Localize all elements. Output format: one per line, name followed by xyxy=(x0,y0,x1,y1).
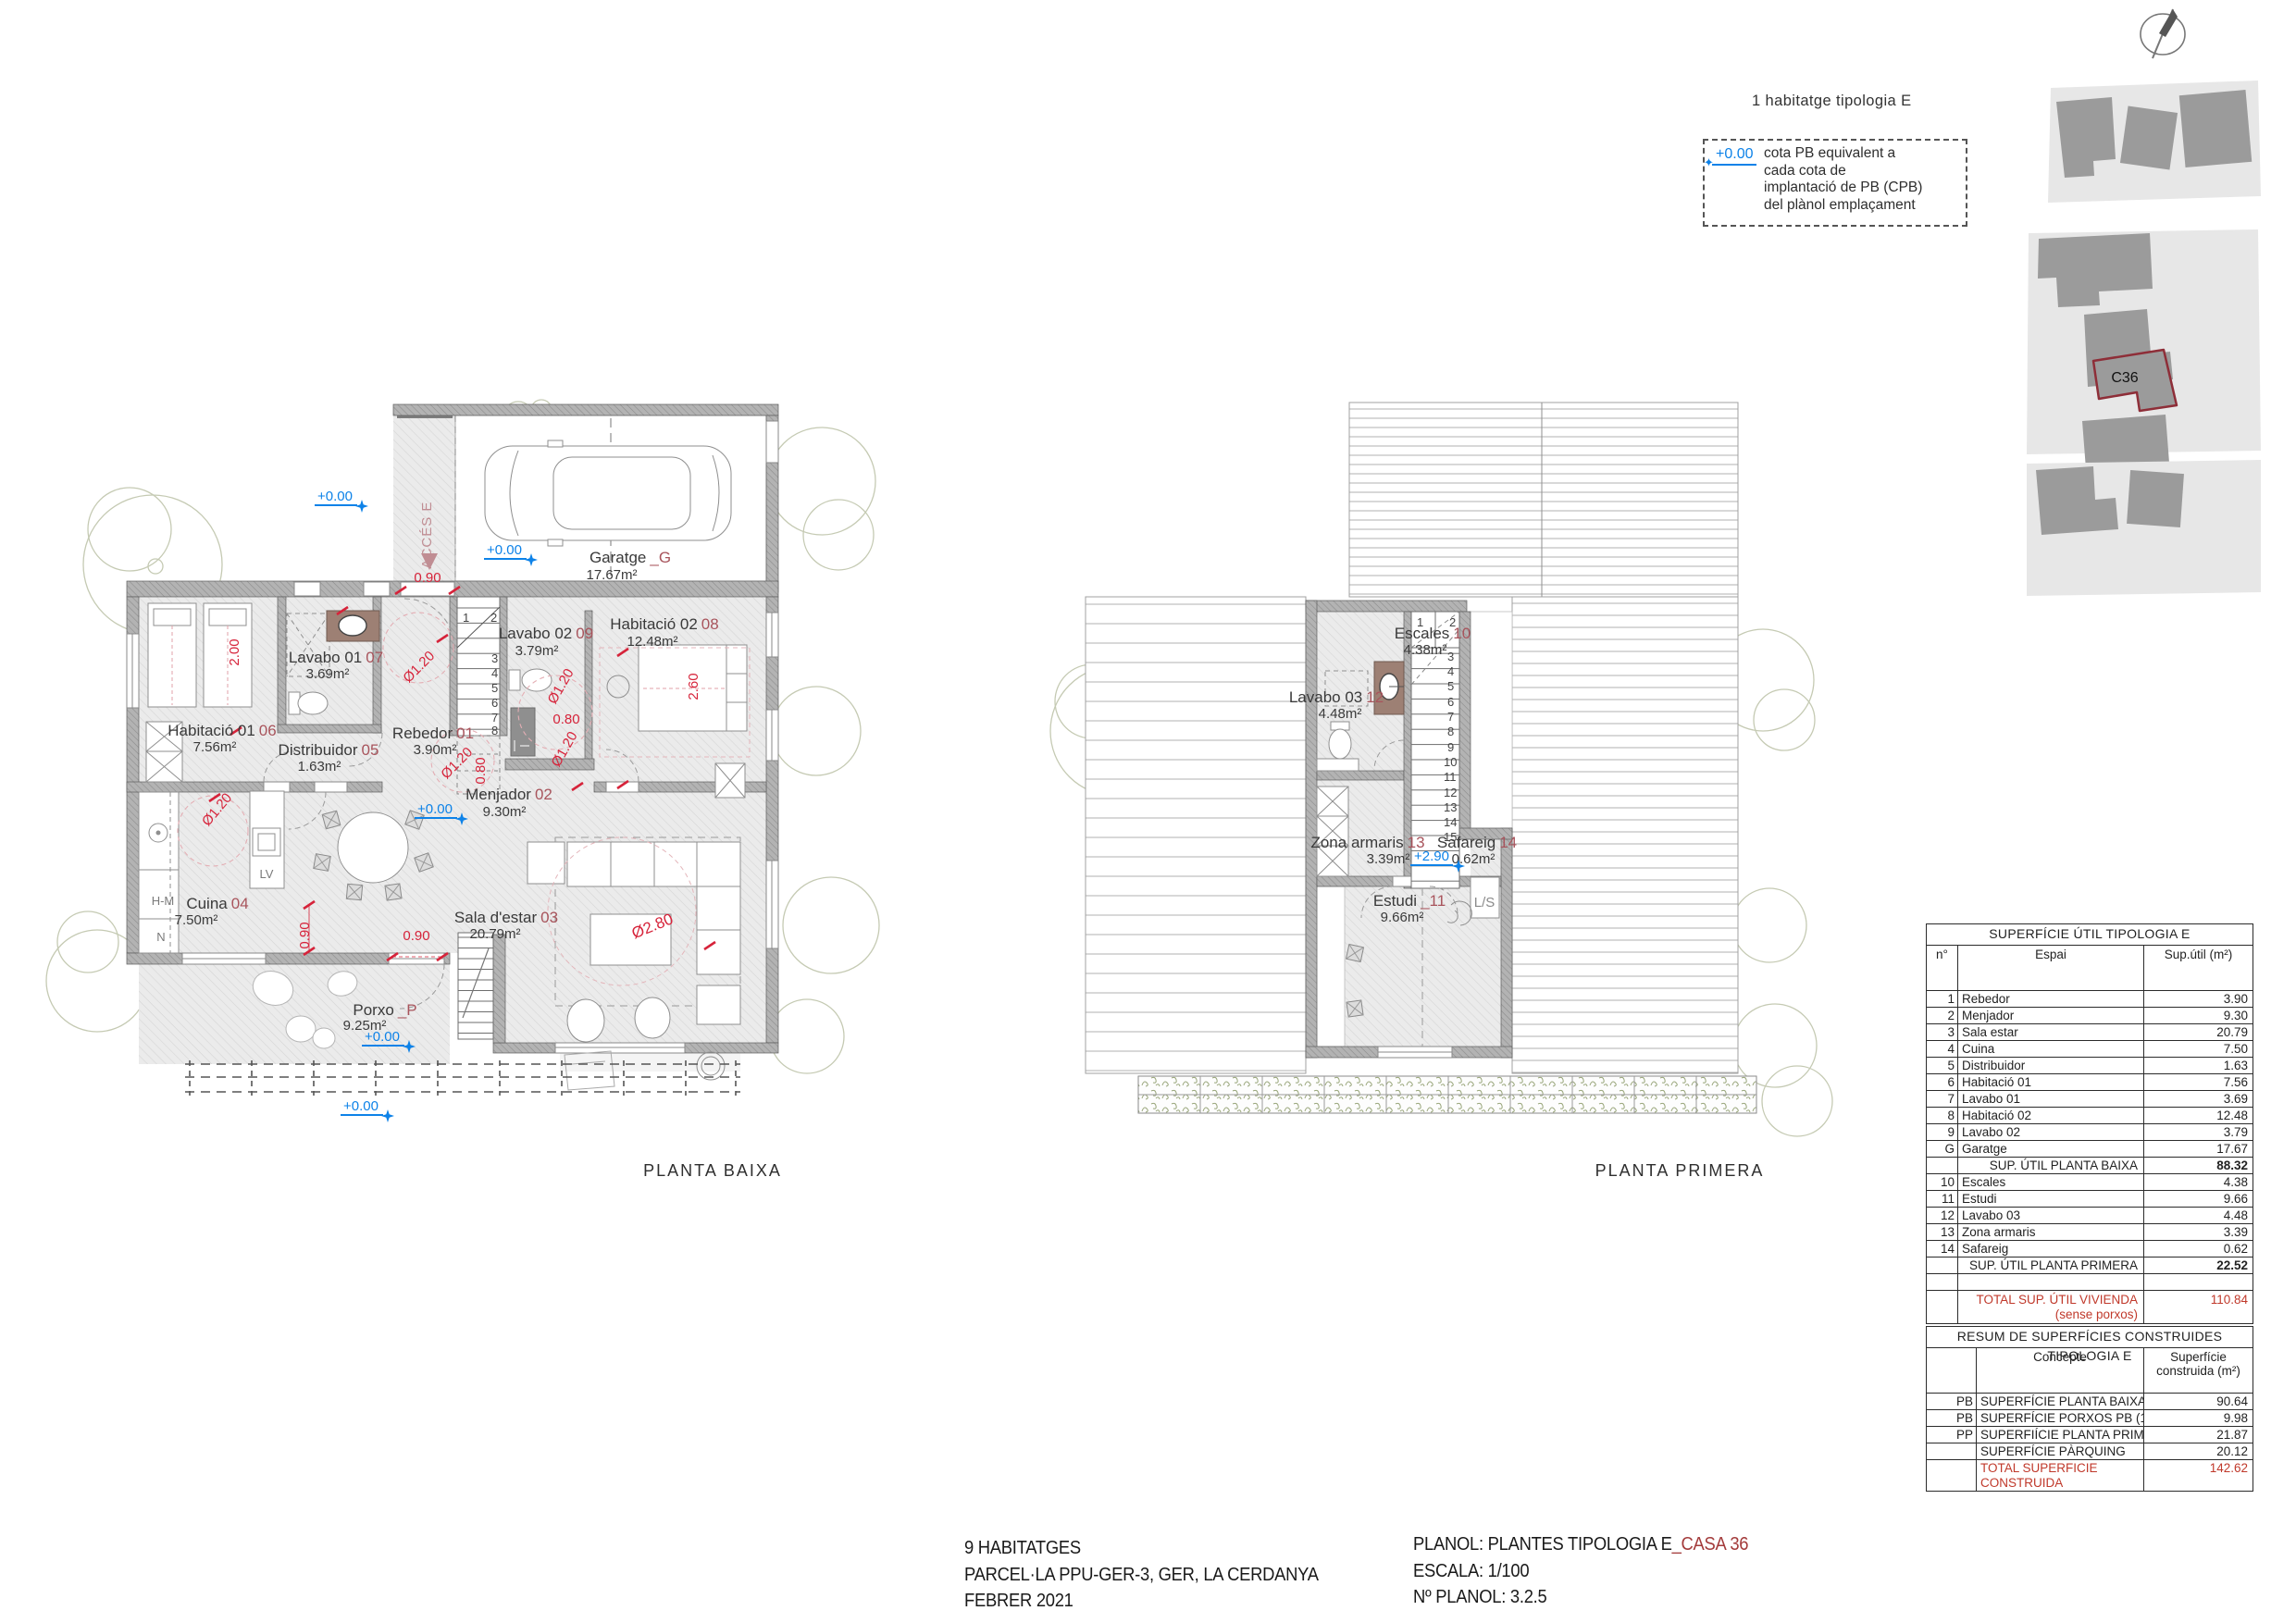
svg-text:Habitació 0106: Habitació 0106 xyxy=(168,722,276,739)
svg-text:0.90: 0.90 xyxy=(403,928,429,944)
svg-text:9: 9 xyxy=(1447,740,1454,754)
svg-text:0.90: 0.90 xyxy=(414,570,441,586)
svg-text:3.39m²: 3.39m² xyxy=(1367,851,1410,867)
table-row: PBSUPERFÍCIE PLANTA BAIXA90.64 xyxy=(1927,1393,2253,1409)
svg-text:+0.00: +0.00 xyxy=(417,801,453,817)
table-row: GGaratge17.67 xyxy=(1927,1140,2253,1157)
table-row: 11Estudi9.66 xyxy=(1927,1190,2253,1207)
table-title: RESUM DE SUPERFÍCIES CONSTRUIDES TIPOLOG… xyxy=(1927,1327,2253,1347)
svg-text:+0.00: +0.00 xyxy=(343,1098,379,1114)
svg-text:Lavabo 0209: Lavabo 0209 xyxy=(499,625,593,642)
table-title: SUPERFÍCIE ÚTIL TIPOLOGIA E xyxy=(1927,924,2253,945)
svg-text:Estudi_11: Estudi_11 xyxy=(1373,892,1446,910)
sheet-house-code: _CASA 36 xyxy=(1672,1534,1749,1555)
svg-text:3: 3 xyxy=(1447,650,1454,663)
table-superficie-util: SUPERFÍCIE ÚTIL TIPOLOGIA E n° Espai Sup… xyxy=(1926,923,2253,1324)
svg-text:10: 10 xyxy=(1444,755,1457,769)
total-row: TOTAL SUP. ÚTIL VIVIENDA(sense porxos)11… xyxy=(1927,1290,2253,1323)
sheet-number: Nº PLANOL: 3.2.5 xyxy=(1413,1584,1748,1611)
table-row: 9Lavabo 023.79 xyxy=(1927,1123,2253,1140)
planta-primera: 1 2 3 4 5 6 7 8 9 10 11 12 13 14 15 Esca… xyxy=(1050,403,1832,1180)
svg-text:1: 1 xyxy=(463,611,469,625)
svg-text:5: 5 xyxy=(491,681,498,695)
table-row: 10Escales4.38 xyxy=(1927,1173,2253,1190)
col-espai: Espai xyxy=(1958,946,2144,990)
svg-text:9.66m²: 9.66m² xyxy=(1381,910,1424,925)
subtotal-pb-row: SUP. ÚTIL PLANTA BAIXA88.32 xyxy=(1927,1157,2253,1173)
svg-text:Menjador02: Menjador02 xyxy=(465,786,552,803)
svg-text:3.90m²: 3.90m² xyxy=(414,742,457,758)
svg-text:3.69m²: 3.69m² xyxy=(306,666,350,682)
legend-line: del plànol emplaçament xyxy=(1764,197,1922,215)
north-arrow-icon xyxy=(2141,9,2185,58)
svg-text:Sala d'estar03: Sala d'estar03 xyxy=(454,909,558,926)
svg-text:6: 6 xyxy=(491,696,498,710)
svg-text:Porxo_P: Porxo_P xyxy=(353,1001,416,1019)
svg-text:12.48m²: 12.48m² xyxy=(627,634,677,650)
svg-text:13: 13 xyxy=(1444,800,1457,814)
planta-baixa: ACCÉS E 0.90 2.00 Ø1.20 Ø1.20 0.80 Ø1.20… xyxy=(46,400,879,1180)
table-row: PPSUPERFIÍCIE PLANTA PRIMERA21.87 xyxy=(1927,1426,2253,1443)
svg-text:L/S: L/S xyxy=(1474,895,1496,911)
svg-text:2.60: 2.60 xyxy=(686,673,701,700)
titleblock-sheet: PLANOL: PLANTES TIPOLOGIA E_CASA 36 ESCA… xyxy=(1413,1531,1748,1611)
project-location: PARCEL·LA PPU-GER-3, GER, LA CERDANYA xyxy=(964,1562,1319,1589)
table-row: 13Zona armaris3.39 xyxy=(1927,1223,2253,1240)
col-concepte: Concepte xyxy=(1977,1348,2144,1393)
caption-planta-primera: PLANTA PRIMERA xyxy=(1595,1161,1765,1180)
col-no: n° xyxy=(1927,946,1958,990)
legend-cota-value: +0.00 xyxy=(1712,146,1756,166)
project-date: FEBRER 2021 xyxy=(964,1588,1319,1615)
svg-text:Habitació 0208: Habitació 0208 xyxy=(610,615,718,633)
total-row: TOTAL SUPERFICIECONSTRUIDA142.62 xyxy=(1927,1459,2253,1491)
svg-text:+0.00: +0.00 xyxy=(317,489,353,504)
legend-line: cada cota de xyxy=(1764,163,1922,180)
svg-text:5: 5 xyxy=(1447,679,1454,693)
table-row: 5Distribuidor1.63 xyxy=(1927,1057,2253,1073)
svg-text:4.48m²: 4.48m² xyxy=(1319,706,1362,722)
table-row: 12Lavabo 034.48 xyxy=(1927,1207,2253,1223)
svg-text:4: 4 xyxy=(491,666,498,680)
svg-text:7.56m²: 7.56m² xyxy=(193,739,237,755)
svg-text:8: 8 xyxy=(1447,725,1454,738)
cota-marker-icon: ✦ xyxy=(1704,155,1714,170)
table-resum-construides: RESUM DE SUPERFÍCIES CONSTRUIDES TIPOLOG… xyxy=(1926,1326,2253,1492)
empty-row xyxy=(1927,1273,2253,1290)
table-header: n° Espai Sup.útil (m²) xyxy=(1927,945,2253,990)
subtotal-pp-row: SUP. ÚTIL PLANTA PRIMERA22.52 xyxy=(1927,1257,2253,1273)
svg-text:11: 11 xyxy=(1444,770,1457,784)
legend-text: cota PB equivalent a cada cota de implan… xyxy=(1764,145,1922,214)
wardrobe-x-pp xyxy=(1317,787,1348,876)
svg-text:2.00: 2.00 xyxy=(227,638,242,665)
svg-text:7: 7 xyxy=(1447,710,1454,724)
svg-text:0.90: 0.90 xyxy=(297,922,313,948)
svg-text:Garatge_G: Garatge_G xyxy=(590,549,671,566)
table-row: 1Rebedor3.90 xyxy=(1927,990,2253,1007)
svg-text:+2.90: +2.90 xyxy=(1414,849,1449,864)
car xyxy=(485,440,731,546)
table-row: 14Safareig0.62 xyxy=(1927,1240,2253,1257)
plan-sheet: C36 xyxy=(0,0,2296,1623)
col-sup: Sup.útil (m²) xyxy=(2144,946,2253,990)
table-row: 8Habitació 0212.48 xyxy=(1927,1107,2253,1123)
site-parcel-label: C36 xyxy=(2111,370,2138,386)
legend-box: +0.00 ✦ cota PB equivalent a cada cota d… xyxy=(1703,139,1967,227)
legend-line: cota PB equivalent a xyxy=(1764,145,1922,163)
titleblock-project: 9 HABITATGES PARCEL·LA PPU-GER-3, GER, L… xyxy=(964,1535,1319,1615)
site-map: C36 xyxy=(2027,81,2261,596)
svg-text:H-M: H-M xyxy=(152,894,175,908)
svg-text:Lavabo 0107: Lavabo 0107 xyxy=(289,649,383,666)
svg-text:Lavabo 0312: Lavabo 0312 xyxy=(1289,688,1384,706)
sheet-scale: ESCALA: 1/100 xyxy=(1413,1558,1748,1585)
svg-text:4.38m²: 4.38m² xyxy=(1404,642,1447,658)
svg-text:2: 2 xyxy=(490,611,497,625)
svg-text:7: 7 xyxy=(491,711,498,725)
table-header: Concepte Superfícieconstruida (m²) xyxy=(1927,1347,2253,1393)
svg-text:N: N xyxy=(156,930,165,944)
svg-text:9.25m²: 9.25m² xyxy=(343,1018,387,1034)
sheet-note: 1 habitatge tipologia E xyxy=(1752,93,1912,110)
svg-text:7.50m²: 7.50m² xyxy=(175,912,218,928)
svg-text:20.79m²: 20.79m² xyxy=(469,926,520,942)
svg-text:0.80: 0.80 xyxy=(552,712,579,727)
svg-text:Cuina04: Cuina04 xyxy=(186,895,248,912)
table-row: 7Lavabo 013.69 xyxy=(1927,1090,2253,1107)
table-row: PBSUPERFÍCIE PORXOS PB (100%)9.98 xyxy=(1927,1409,2253,1426)
legend-line: implantació de PB (CPB) xyxy=(1764,180,1922,197)
svg-text:1.63m²: 1.63m² xyxy=(298,759,341,774)
svg-text:0.80: 0.80 xyxy=(473,757,489,784)
table-row: 2Menjador9.30 xyxy=(1927,1007,2253,1023)
svg-text:4: 4 xyxy=(1447,664,1454,678)
planter-x xyxy=(715,763,745,798)
svg-text:12: 12 xyxy=(1444,786,1457,799)
table-row: 4Cuina7.50 xyxy=(1927,1040,2253,1057)
svg-text:+0.00: +0.00 xyxy=(487,542,522,558)
svg-text:9.30m²: 9.30m² xyxy=(483,804,527,820)
col-superficie: Superfícieconstruida (m²) xyxy=(2144,1348,2253,1393)
table-row: SUPERFÍCIE PÀRQUING20.12 xyxy=(1927,1443,2253,1459)
hedge xyxy=(1138,1076,1756,1113)
svg-text:14: 14 xyxy=(1444,815,1457,829)
svg-text:Distribuidor05: Distribuidor05 xyxy=(279,741,379,759)
svg-text:LV: LV xyxy=(260,867,274,881)
svg-text:Escales10: Escales10 xyxy=(1395,625,1471,642)
table-row: 3Sala estar20.79 xyxy=(1927,1023,2253,1040)
svg-text:6: 6 xyxy=(1447,695,1454,709)
table-row: 6Habitació 017.56 xyxy=(1927,1073,2253,1090)
svg-text:Zona armaris13: Zona armaris13 xyxy=(1310,834,1424,851)
caption-planta-baixa: PLANTA BAIXA xyxy=(643,1161,782,1180)
svg-text:3.79m²: 3.79m² xyxy=(515,643,559,659)
project-name: 9 HABITATGES xyxy=(964,1535,1319,1562)
svg-text:3: 3 xyxy=(491,651,498,665)
sheet-name: PLANOL: PLANTES TIPOLOGIA E_CASA 36 xyxy=(1413,1531,1748,1558)
svg-text:8: 8 xyxy=(491,724,498,737)
svg-text:Rebedor01: Rebedor01 xyxy=(392,725,474,742)
svg-text:17.67m²: 17.67m² xyxy=(586,567,637,583)
